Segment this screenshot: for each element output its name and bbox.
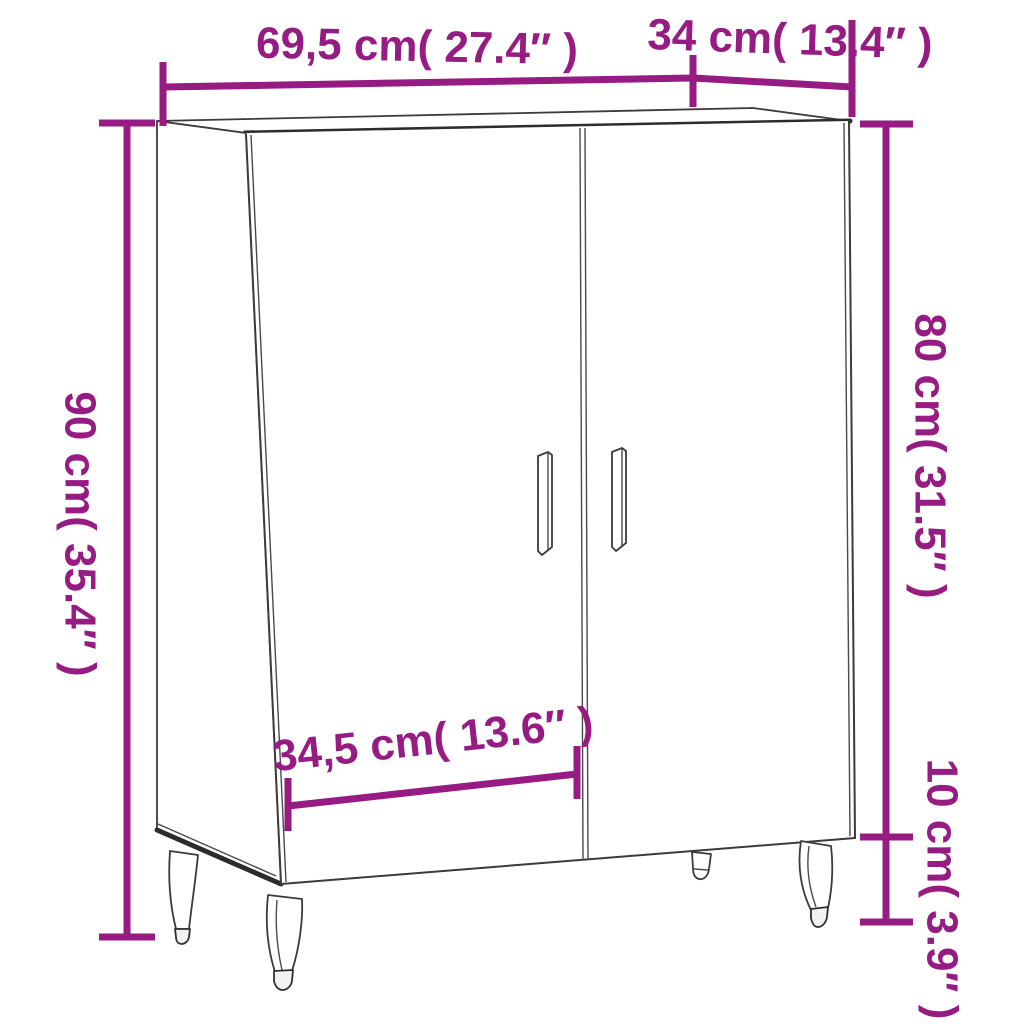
- dimension-label-leg-height: 10 cm( 3.9″ ): [918, 759, 967, 1020]
- leg-front-right: [799, 841, 832, 927]
- dimension-leg-height: 10 cm( 3.9″ ): [860, 759, 967, 1020]
- dimension-overall-width: 69,5 cm( 27.4″ ): [163, 19, 693, 126]
- leg-front-left: [267, 895, 302, 990]
- dimension-label-overall-height: 90 cm( 35.4″ ): [56, 391, 105, 676]
- diagram-svg: 69,5 cm( 27.4″ ) 34 cm( 13.4″ ) 90 cm( 3…: [0, 0, 1024, 1024]
- dimension-body-height: 80 cm( 31.5″ ): [860, 122, 955, 837]
- dimension-overall-height: 90 cm( 35.4″ ): [56, 123, 156, 937]
- handle-left-body: [538, 452, 552, 555]
- dimension-label-body-height: 80 cm( 31.5″ ): [906, 313, 955, 598]
- dimension-line: [163, 78, 693, 87]
- dimension-label-depth: 34 cm( 13.4″ ): [647, 10, 934, 69]
- handle-left: [538, 452, 552, 555]
- dimension-line: [693, 78, 852, 87]
- product-dimension-diagram: 69,5 cm( 27.4″ ) 34 cm( 13.4″ ) 90 cm( 3…: [0, 0, 1024, 1024]
- handle-right-body: [612, 448, 626, 551]
- handle-right: [612, 448, 626, 551]
- dimension-label-overall-width: 69,5 cm( 27.4″ ): [256, 19, 579, 75]
- cabinet: [157, 108, 855, 990]
- leg-back-right: [692, 852, 711, 879]
- leg-back-left: [169, 851, 198, 944]
